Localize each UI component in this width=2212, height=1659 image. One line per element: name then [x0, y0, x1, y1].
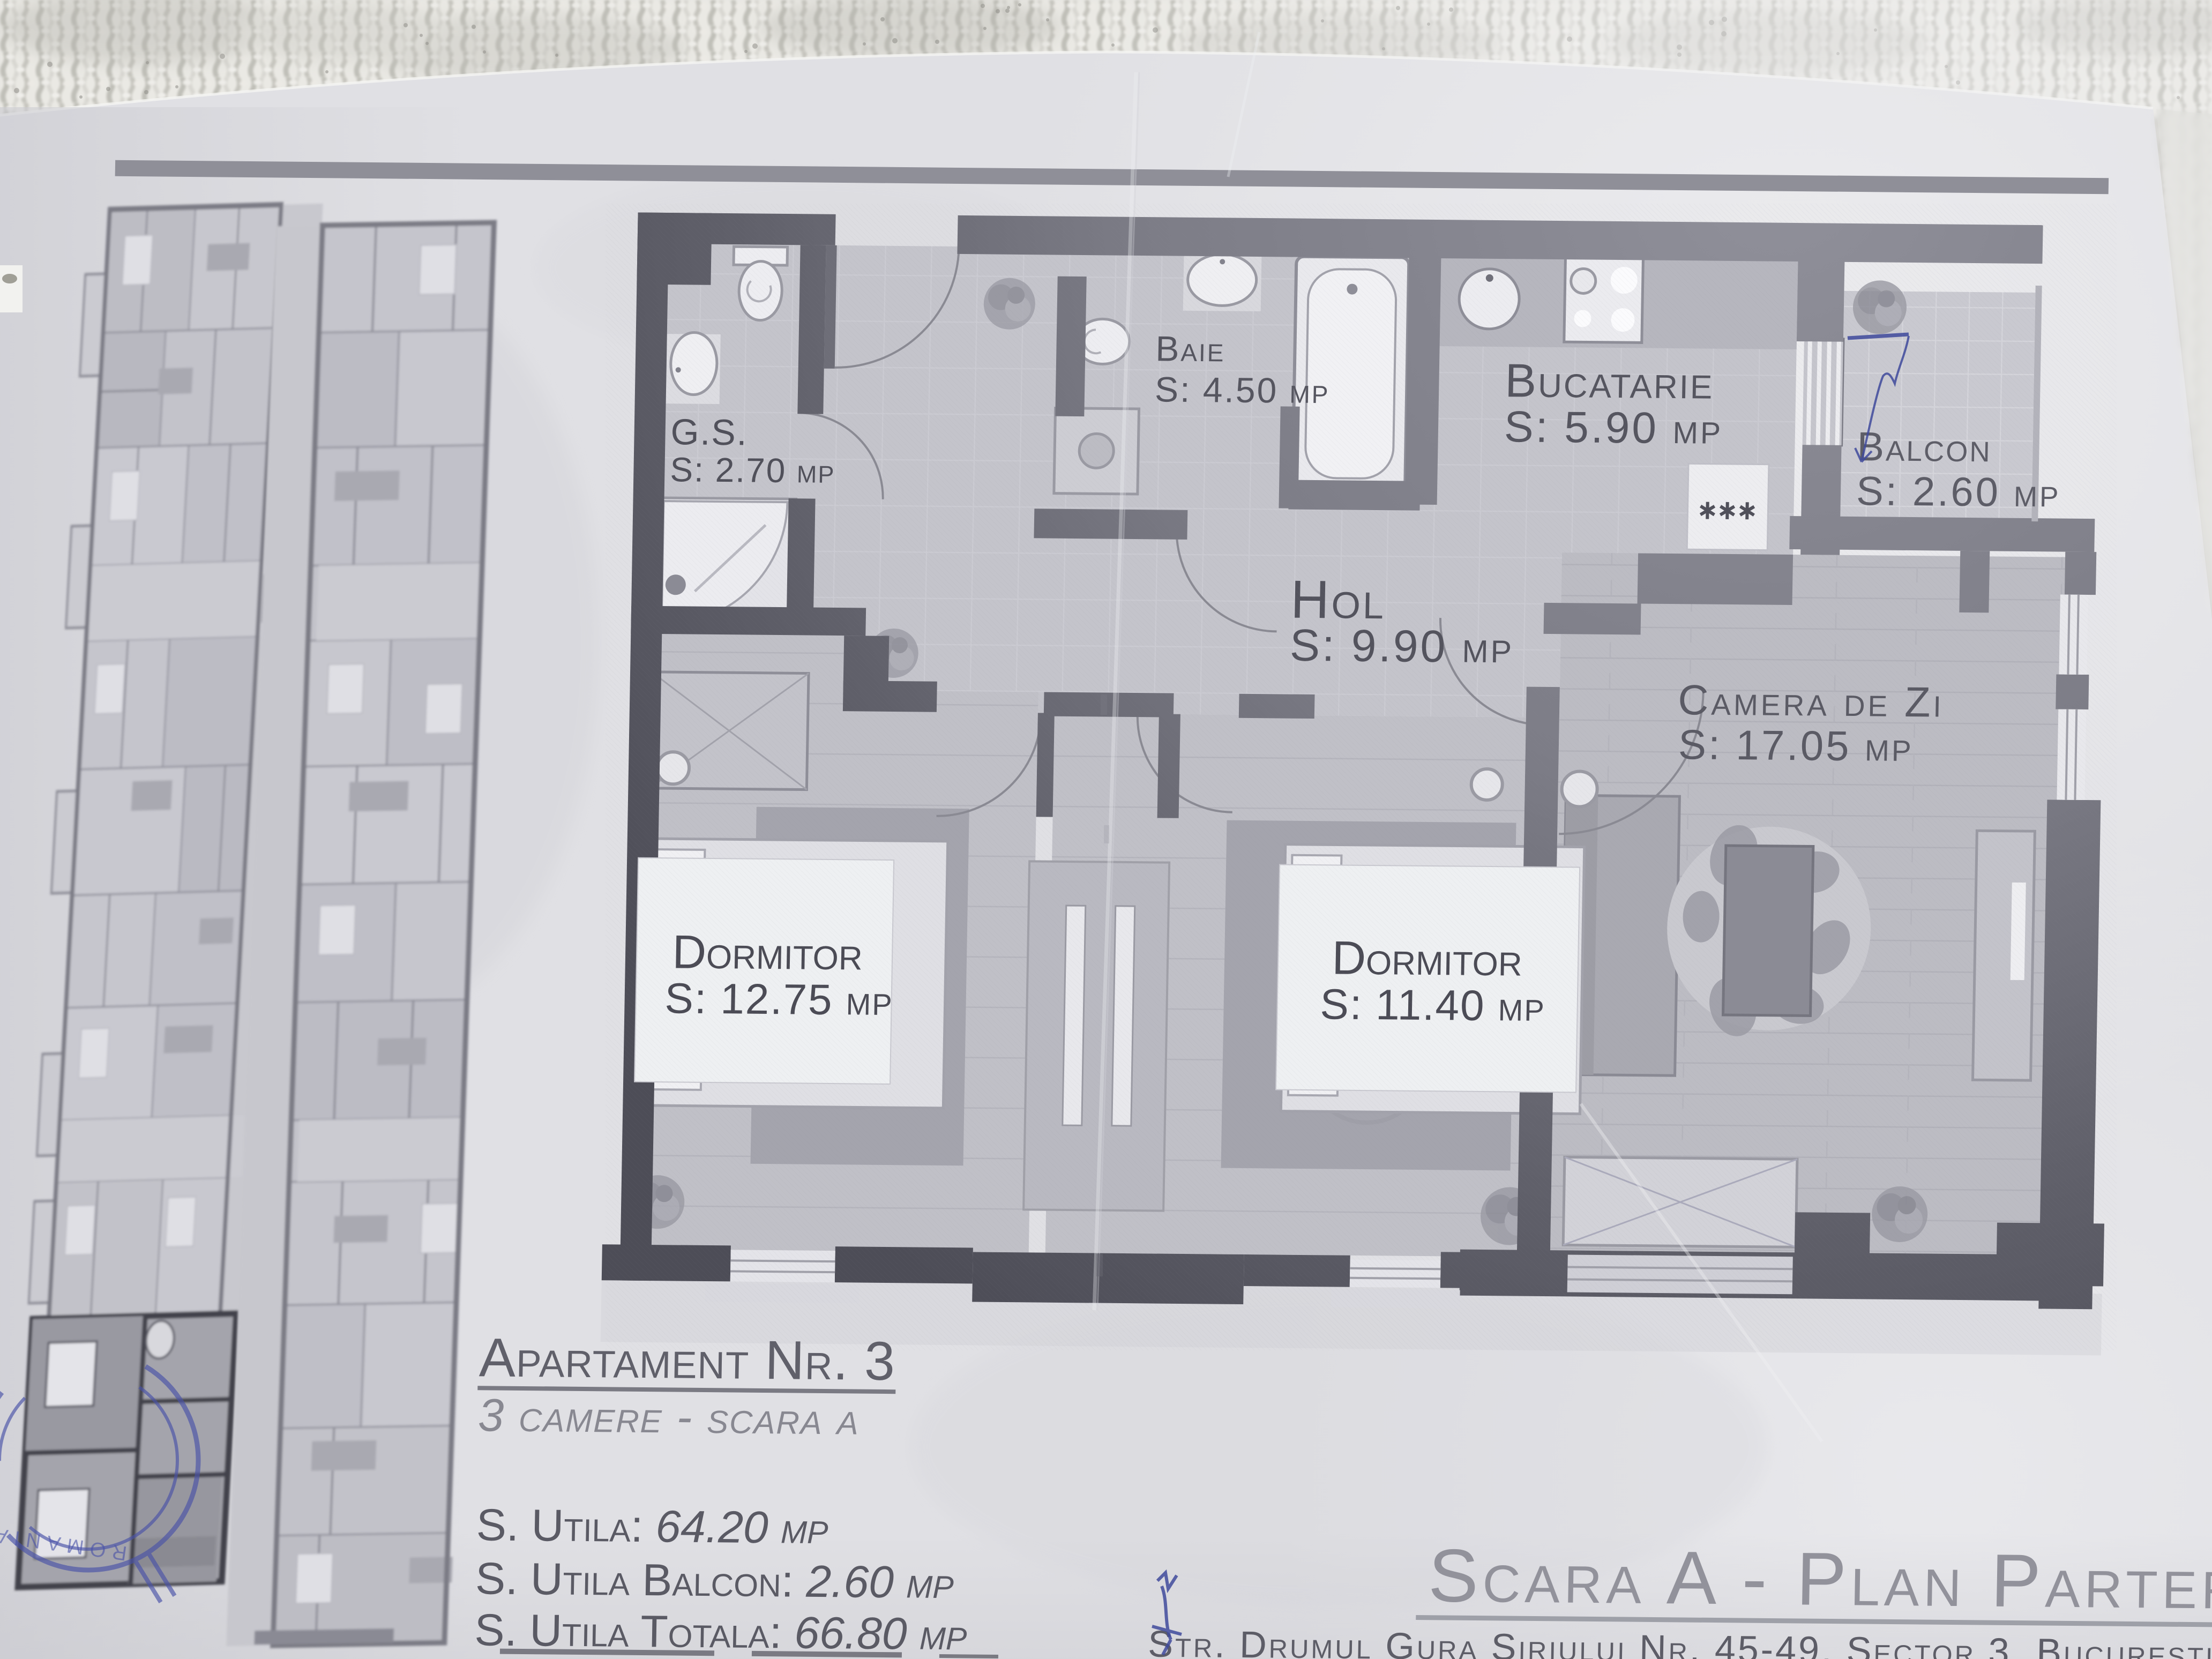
svg-text:3 camere - scara a: 3 camere - scara a — [478, 1389, 860, 1444]
svg-text:Scara A - Plan Parter: Scara A - Plan Parter — [1428, 1533, 2212, 1625]
svg-text:S. Utila Balcon: 2.60 mp: S. Utila Balcon: 2.60 mp — [475, 1553, 954, 1608]
svg-text:S. Utila: 64.20 mp: S. Utila: 64.20 mp — [476, 1499, 828, 1553]
